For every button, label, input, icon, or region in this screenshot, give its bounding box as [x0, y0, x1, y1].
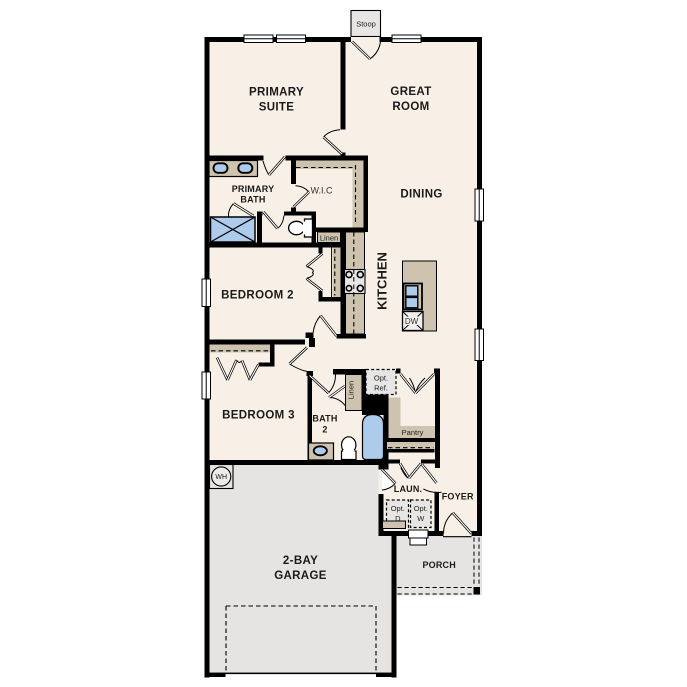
svg-text:GARAGE: GARAGE	[274, 570, 327, 582]
svg-text:SUITE: SUITE	[259, 102, 295, 114]
svg-text:PORCH: PORCH	[422, 560, 456, 570]
svg-text:Linen: Linen	[320, 234, 338, 243]
svg-text:PRIMARY: PRIMARY	[232, 184, 275, 194]
svg-text:Opt.: Opt.	[391, 504, 405, 513]
svg-text:LAUN.: LAUN.	[394, 484, 423, 494]
svg-text:W.I.C: W.I.C	[311, 186, 333, 196]
svg-text:Opt.: Opt.	[414, 504, 428, 513]
svg-text:DW: DW	[405, 317, 419, 326]
svg-text:Ref.: Ref.	[374, 384, 388, 393]
svg-text:Pantry: Pantry	[402, 428, 424, 437]
svg-text:Stoop: Stoop	[356, 20, 376, 29]
svg-text:PRIMARY: PRIMARY	[249, 87, 304, 99]
svg-text:2-BAY: 2-BAY	[283, 555, 318, 567]
svg-text:GREAT: GREAT	[390, 86, 431, 98]
svg-text:DINING: DINING	[400, 189, 442, 201]
svg-text:Linen: Linen	[347, 381, 356, 399]
svg-text:ROOM: ROOM	[392, 101, 429, 113]
svg-text:BATH: BATH	[312, 414, 337, 424]
svg-text:W: W	[417, 514, 425, 523]
svg-text:FOYER: FOYER	[442, 491, 474, 501]
svg-text:BEDROOM 3: BEDROOM 3	[222, 410, 295, 422]
svg-text:Opt.: Opt.	[374, 374, 388, 383]
svg-text:KITCHEN: KITCHEN	[375, 252, 390, 310]
svg-text:BEDROOM 2: BEDROOM 2	[221, 290, 294, 302]
svg-text:BATH: BATH	[240, 195, 265, 205]
svg-text:WH: WH	[215, 474, 227, 481]
svg-text:2: 2	[322, 425, 327, 435]
